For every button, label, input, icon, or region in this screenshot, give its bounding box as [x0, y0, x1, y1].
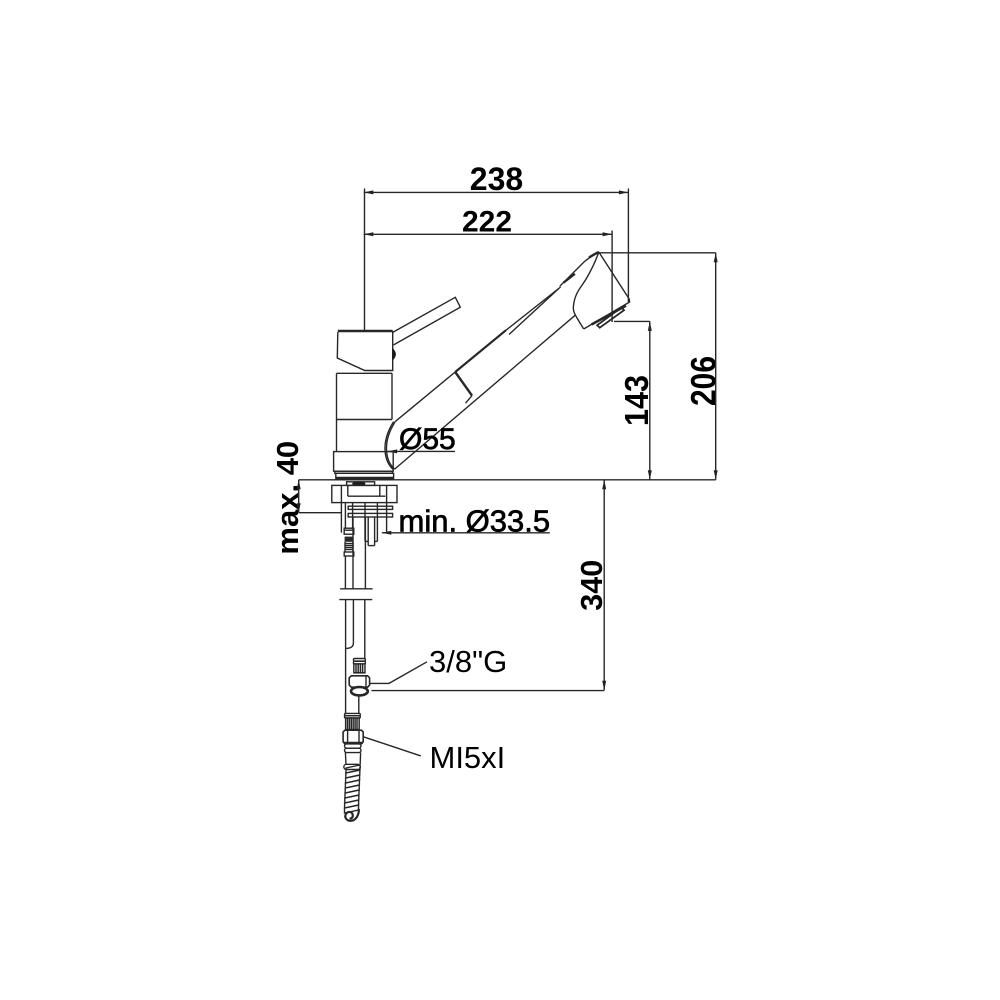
svg-text:143: 143: [619, 375, 656, 426]
svg-text:222: 222: [462, 206, 512, 239]
svg-text:max. 40: max. 40: [270, 441, 305, 555]
svg-text:206: 206: [684, 356, 723, 406]
svg-text:3/8"G: 3/8"G: [429, 644, 507, 679]
svg-text:238: 238: [470, 161, 523, 197]
svg-text:MI5xI: MI5xI: [430, 740, 506, 775]
